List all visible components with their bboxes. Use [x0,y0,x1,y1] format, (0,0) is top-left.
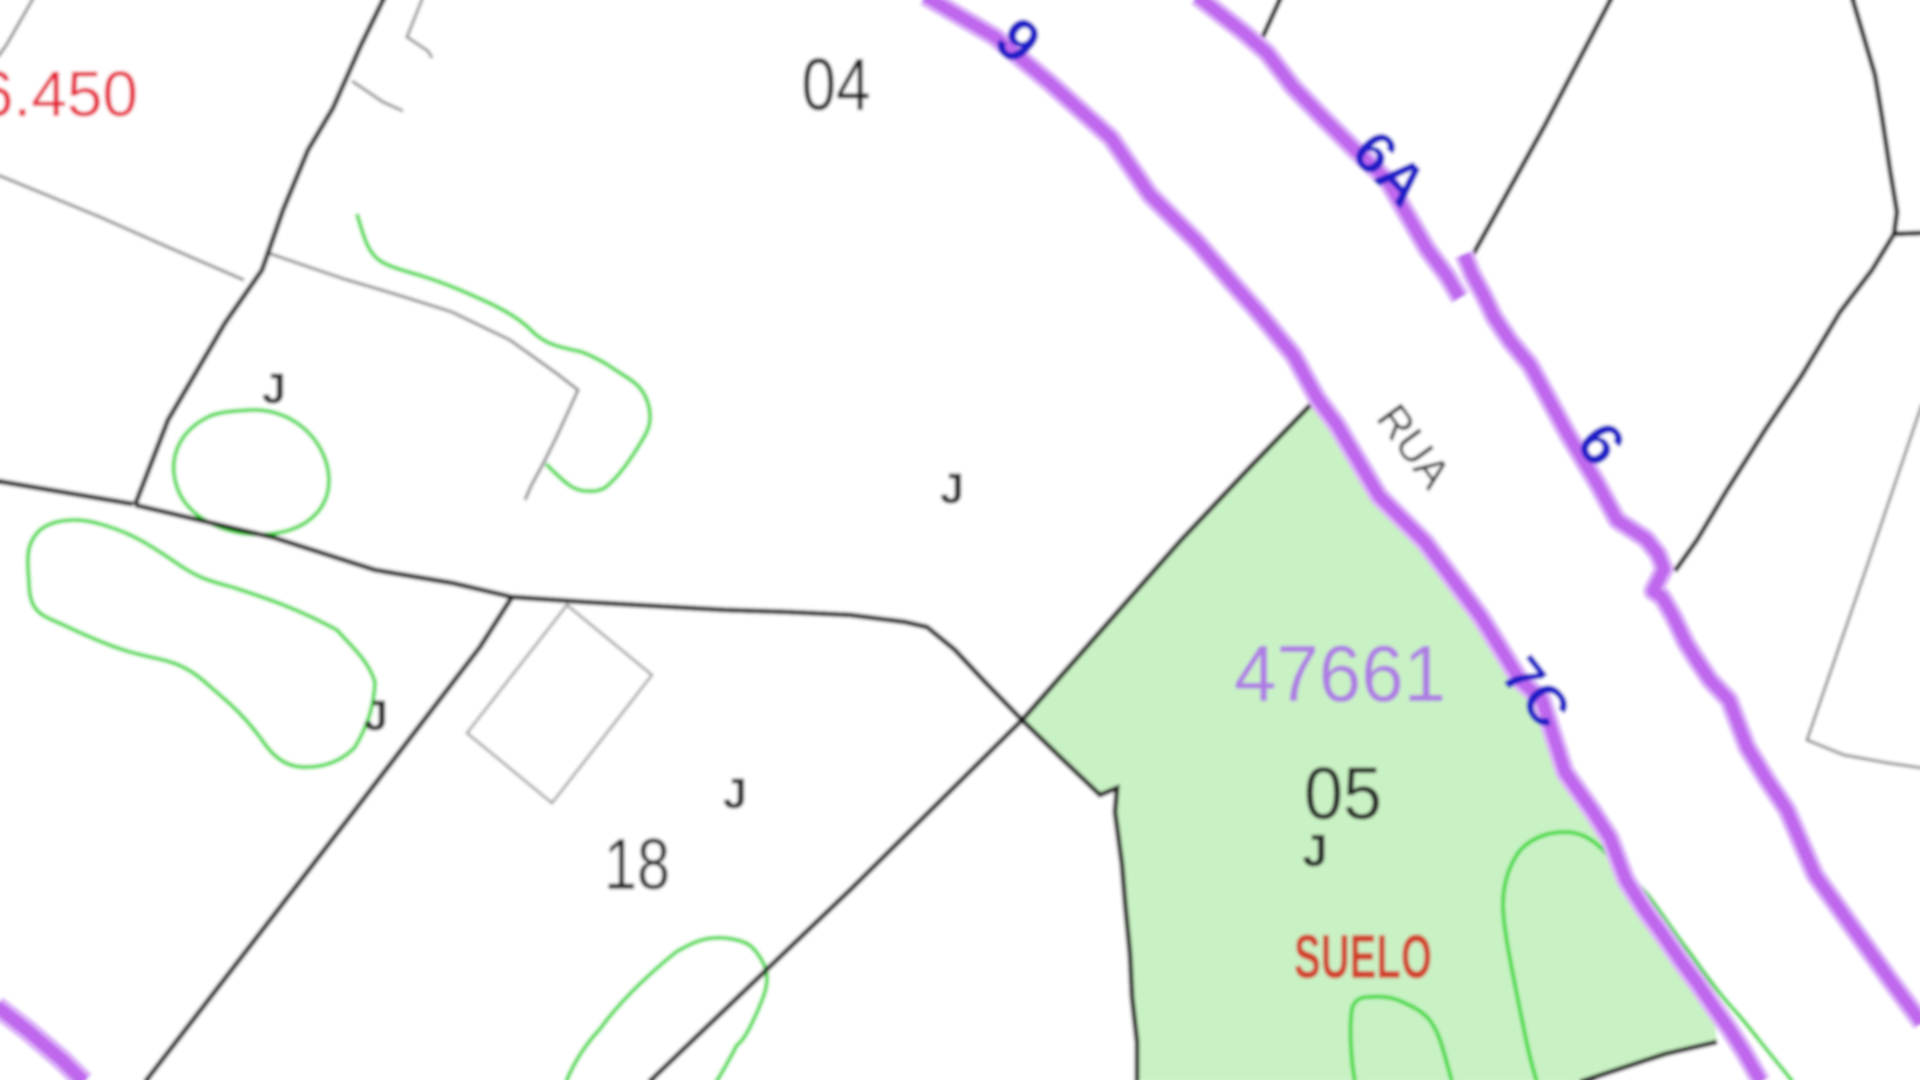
svg-text:J: J [364,692,388,740]
svg-text:47661: 47661 [1234,629,1446,718]
svg-text:04: 04 [802,43,871,126]
svg-text:05: 05 [1304,752,1382,835]
svg-text:SUELO: SUELO [1294,923,1432,992]
svg-text:J: J [1302,825,1327,876]
svg-text:J: J [723,770,747,818]
svg-text:6.450: 6.450 [0,58,138,130]
svg-text:J: J [262,365,286,413]
svg-text:J: J [940,465,964,513]
svg-text:18: 18 [604,825,670,905]
